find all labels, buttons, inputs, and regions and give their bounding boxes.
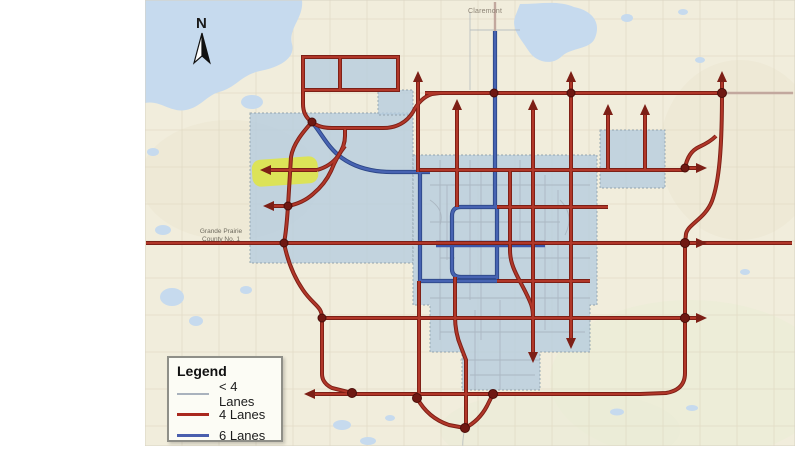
map-figure: N Claremont Grande Prairie County No. 1 … xyxy=(0,0,800,450)
lt4-lanes-line-swatch xyxy=(177,393,209,395)
6-lanes-line-swatch xyxy=(177,434,209,437)
north-arrow-label: N xyxy=(196,15,207,32)
legend-item-label: 6 Lanes xyxy=(219,428,265,443)
legend-item-lt4-lanes: < 4 Lanes xyxy=(177,383,273,404)
legend-item-label: < 4 Lanes xyxy=(219,379,273,409)
legend-item-label: 4 Lanes xyxy=(219,407,265,422)
legend: Legend < 4 Lanes 4 Lanes 6 Lanes xyxy=(167,356,283,442)
legend-item-6-lanes: 6 Lanes xyxy=(177,425,273,446)
legend-item-4-lanes: 4 Lanes xyxy=(177,404,273,425)
4-lanes-line-swatch xyxy=(177,413,209,416)
legend-title: Legend xyxy=(177,363,273,379)
road-network-map: N xyxy=(0,0,800,450)
